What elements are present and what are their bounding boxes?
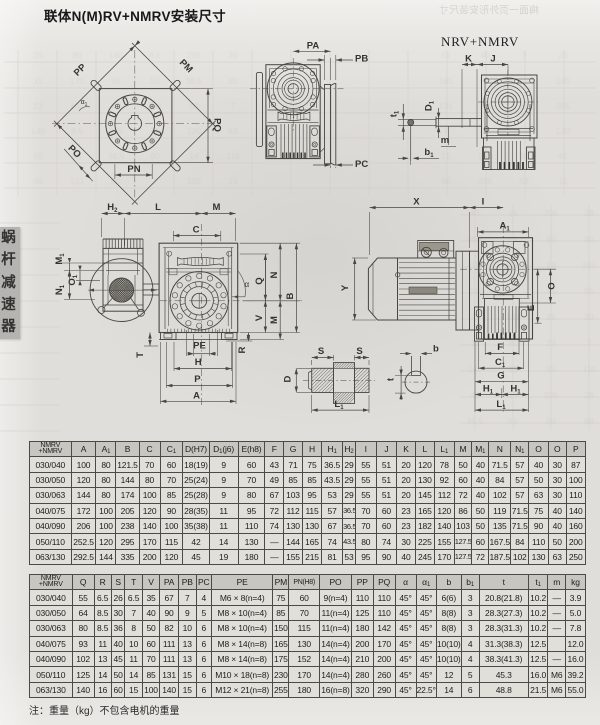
svg-text:C: C: [193, 225, 200, 236]
svg-text:I: I: [482, 197, 485, 208]
svg-text:PO: PO: [66, 143, 83, 160]
svg-text:S: S: [318, 346, 324, 357]
svg-text:H1: H1: [510, 383, 521, 395]
svg-text:M1: M1: [54, 253, 66, 265]
svg-text:T: T: [135, 352, 146, 358]
svg-text:L1: L1: [496, 399, 506, 411]
svg-text:PN: PN: [127, 164, 140, 175]
svg-text:PP: PP: [72, 61, 89, 78]
svg-text:F: F: [497, 342, 503, 353]
svg-text:R: R: [237, 346, 248, 353]
svg-text:PB: PB: [355, 54, 368, 65]
svg-text:K: K: [465, 54, 472, 65]
svg-text:A: A: [193, 391, 200, 402]
svg-text:V: V: [254, 314, 265, 321]
svg-text:H2: H2: [107, 202, 118, 214]
svg-text:S: S: [356, 346, 362, 357]
svg-text:b: b: [433, 343, 439, 354]
svg-text:D: D: [282, 375, 293, 382]
svg-text:t: t: [385, 377, 396, 381]
svg-text:G: G: [497, 370, 504, 381]
svg-text:A1: A1: [499, 220, 510, 232]
svg-text:H1: H1: [483, 383, 494, 395]
svg-text:H: H: [195, 357, 202, 368]
svg-text:N1: N1: [54, 284, 66, 295]
svg-text:Q: Q: [254, 277, 265, 284]
svg-text:m: m: [441, 135, 449, 146]
svg-text:M: M: [269, 316, 280, 324]
svg-text:Y: Y: [340, 284, 351, 291]
svg-text:梅面一页外形安装尺寸: 梅面一页外形安装尺寸: [439, 4, 539, 17]
svg-text:D1: D1: [424, 100, 436, 111]
svg-text:PQ: PQ: [212, 118, 223, 132]
svg-text:C1: C1: [495, 357, 506, 369]
svg-text:b1: b1: [424, 147, 434, 159]
svg-text:M: M: [213, 202, 221, 213]
svg-text:L1: L1: [334, 399, 344, 411]
svg-text:L: L: [155, 202, 161, 213]
svg-text:J: J: [490, 54, 495, 65]
svg-text:PA: PA: [307, 41, 320, 52]
svg-text:PM: PM: [177, 57, 195, 75]
svg-text:N: N: [269, 271, 280, 278]
svg-text:P: P: [194, 374, 201, 385]
svg-text:X: X: [413, 197, 420, 208]
svg-text:PC: PC: [355, 159, 368, 170]
svg-text:B: B: [285, 292, 296, 299]
svg-text:O: O: [547, 282, 558, 289]
svg-text:PE: PE: [193, 341, 206, 352]
svg-text:E: E: [526, 305, 537, 311]
svg-text:t1: t1: [389, 110, 401, 117]
